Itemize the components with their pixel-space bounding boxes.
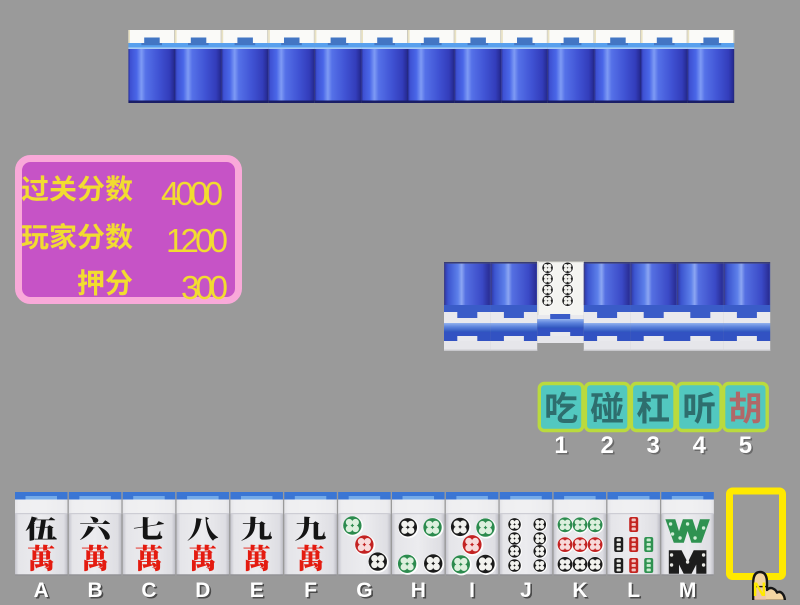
svg-text:H: H — [411, 579, 426, 600]
svg-text:J: J — [520, 579, 532, 600]
svg-text:2: 2 — [601, 432, 614, 459]
svg-text:4: 4 — [693, 432, 707, 459]
svg-text:M: M — [679, 579, 697, 600]
svg-text:W: W — [668, 514, 709, 549]
svg-text:1200: 1200 — [166, 222, 228, 259]
svg-text:I: I — [469, 579, 475, 600]
svg-text:E: E — [250, 579, 264, 600]
svg-text:5: 5 — [739, 432, 752, 459]
svg-text:F: F — [304, 579, 317, 600]
svg-text:C: C — [141, 579, 156, 600]
svg-text:3: 3 — [647, 432, 660, 459]
svg-text:G: G — [356, 579, 372, 600]
svg-text:1: 1 — [554, 432, 567, 459]
svg-text:A: A — [34, 579, 49, 600]
svg-text:K: K — [572, 579, 587, 600]
svg-text:L: L — [627, 579, 640, 600]
svg-text:N: N — [753, 580, 767, 600]
svg-text:4000: 4000 — [161, 175, 223, 212]
svg-text:D: D — [195, 579, 210, 600]
svg-text:300: 300 — [181, 269, 228, 306]
svg-text:B: B — [88, 579, 103, 600]
